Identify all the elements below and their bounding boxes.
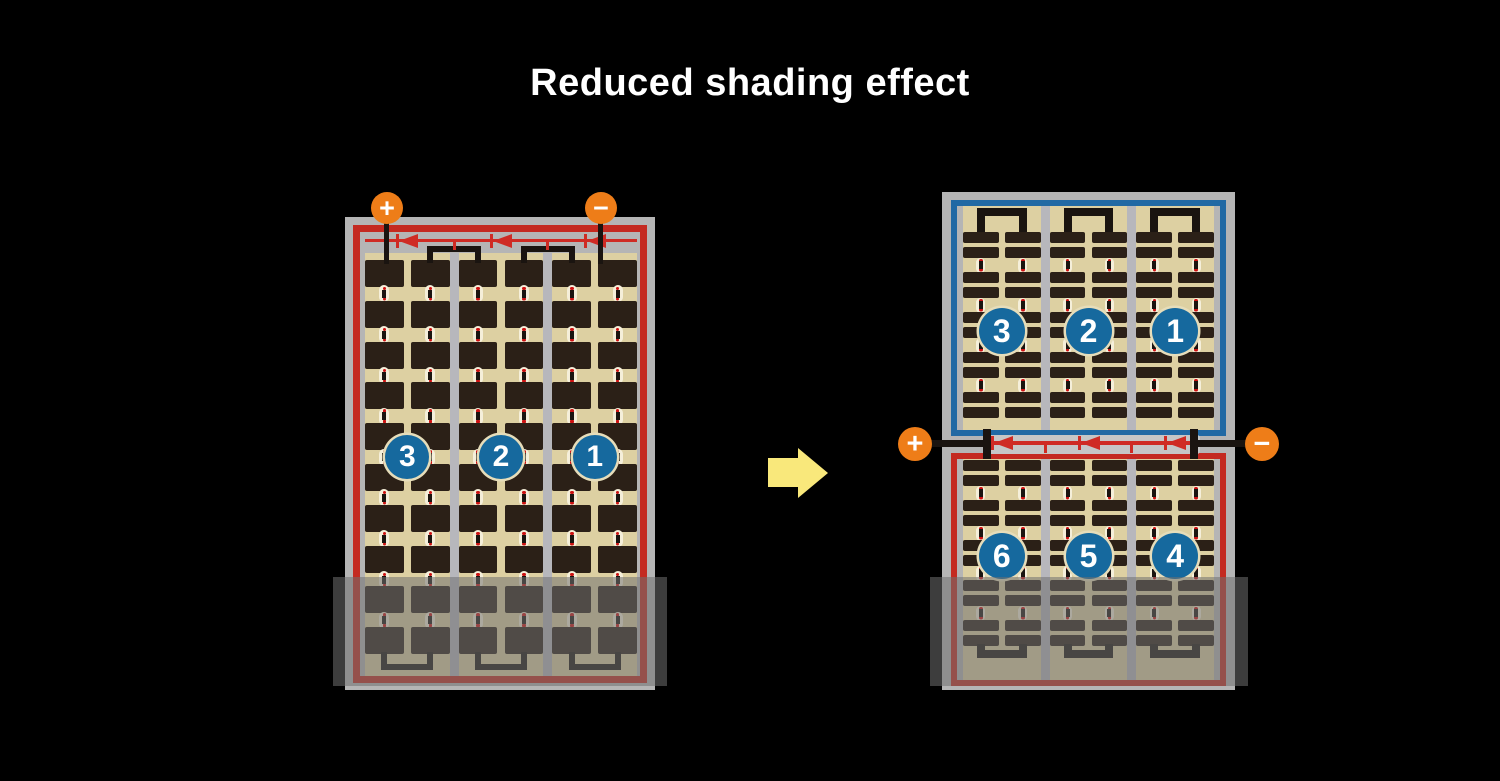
minus-icon: − (1254, 430, 1271, 459)
cell-connector (1018, 378, 1027, 393)
cell-connector (1192, 486, 1201, 501)
cell-connector (1018, 526, 1027, 541)
solar-cell (1136, 500, 1172, 511)
solar-cell (1092, 232, 1128, 243)
solar-cell (1178, 352, 1214, 363)
solar-cell (505, 546, 544, 573)
bypass-diode (584, 234, 607, 248)
string-number-badge: 4 (1152, 533, 1198, 579)
diode-tick (453, 241, 456, 250)
cell-connector (976, 526, 985, 541)
solar-cell (505, 301, 544, 328)
cell-connector (613, 326, 623, 343)
solar-cell (1050, 367, 1086, 378)
bypass-diode (1164, 436, 1187, 450)
solar-cell (1005, 460, 1041, 471)
solar-cell (411, 342, 450, 369)
solar-cell (1092, 460, 1128, 471)
cell-connector (976, 486, 985, 501)
cell-connector (613, 530, 623, 547)
solar-cell (1178, 475, 1214, 486)
solar-cell (1136, 475, 1172, 486)
cell-connector (613, 489, 623, 506)
solar-cell (1136, 407, 1172, 418)
solar-cell (1005, 475, 1041, 486)
solar-cell (411, 260, 450, 287)
cell-connector (379, 489, 389, 506)
solar-cell (459, 342, 498, 369)
bypass-diode (396, 234, 419, 248)
solar-cell (1136, 392, 1172, 403)
solar-cell (963, 515, 999, 526)
solar-cell (1178, 232, 1214, 243)
column-divider (1041, 206, 1050, 430)
cell-connector (425, 530, 435, 547)
solar-cell (1136, 352, 1172, 363)
solar-cell (963, 475, 999, 486)
bus-bar (1192, 208, 1200, 234)
solar-cell (1178, 407, 1214, 418)
solar-cell (1005, 367, 1041, 378)
cell-connector (379, 285, 389, 302)
minus-icon: − (593, 195, 609, 222)
solar-cell (552, 546, 591, 573)
solar-cell (1005, 352, 1041, 363)
solar-cell (1005, 392, 1041, 403)
cell-connector (976, 258, 985, 273)
cell-connector (1063, 486, 1072, 501)
solar-cell (963, 352, 999, 363)
bus-bar (475, 246, 481, 263)
solar-cell (963, 287, 999, 298)
solar-cell (1050, 272, 1086, 283)
bus-bar (1064, 208, 1072, 234)
solar-cell (411, 546, 450, 573)
solar-cell (1092, 272, 1128, 283)
cell-connector (976, 298, 985, 313)
solar-cell (598, 260, 637, 287)
bus-bar (569, 246, 575, 263)
right-module-shading-overlay (930, 577, 1248, 686)
solar-cell (552, 260, 591, 287)
cell-connector (519, 326, 529, 343)
solar-cell (1092, 515, 1128, 526)
solar-cell (411, 505, 450, 532)
bypass-diode (991, 436, 1014, 450)
cell-connector (379, 530, 389, 547)
bypass-diode (1078, 436, 1101, 450)
solar-cell (459, 546, 498, 573)
solar-cell (1050, 407, 1086, 418)
solar-cell (411, 382, 450, 409)
right-positive-terminal: + (898, 427, 932, 461)
cell-connector (1105, 258, 1114, 273)
solar-cell (459, 505, 498, 532)
solar-cell (1092, 475, 1128, 486)
solar-cell (1178, 392, 1214, 403)
solar-cell (505, 505, 544, 532)
solar-cell (1050, 392, 1086, 403)
string-number-badge: 2 (1066, 308, 1112, 354)
solar-cell (365, 301, 404, 328)
solar-cell (1005, 272, 1041, 283)
cell-connector (1150, 486, 1159, 501)
cell-connector (1192, 378, 1201, 393)
cell-connector (379, 326, 389, 343)
cell-connector (1150, 298, 1159, 313)
negative-lead-wire (1198, 440, 1246, 447)
cell-connector (1063, 258, 1072, 273)
solar-cell (1005, 247, 1041, 258)
diode-tick (546, 241, 549, 250)
negative-stem-wire (598, 222, 603, 264)
cell-connector (519, 285, 529, 302)
solar-cell (1136, 515, 1172, 526)
solar-cell (1178, 500, 1214, 511)
string-number-badge: 5 (1066, 533, 1112, 579)
left-positive-terminal: + (371, 192, 403, 224)
solar-cell (1050, 515, 1086, 526)
cell-connector (425, 489, 435, 506)
solar-cell (1050, 247, 1086, 258)
bus-bar (1150, 208, 1158, 234)
cell-connector (1105, 486, 1114, 501)
string-number-badge: 3 (385, 435, 429, 479)
solar-cell (598, 546, 637, 573)
junction-post-right (1190, 429, 1198, 459)
cell-connector (1105, 298, 1114, 313)
solar-cell (1136, 460, 1172, 471)
solar-cell (365, 505, 404, 532)
left-module-shading-overlay (333, 577, 667, 686)
cell-connector (1063, 298, 1072, 313)
solar-cell (1136, 272, 1172, 283)
solar-cell (1050, 460, 1086, 471)
solar-cell (1005, 287, 1041, 298)
solar-cell (1005, 500, 1041, 511)
solar-cell (963, 407, 999, 418)
diagram-canvas: Reduced shading effect 321321654 + − + − (0, 0, 1500, 781)
solar-cell (1092, 287, 1128, 298)
cell-connector (1150, 258, 1159, 273)
solar-cell (552, 301, 591, 328)
solar-cell (963, 272, 999, 283)
solar-cell (1178, 272, 1214, 283)
solar-cell (1092, 352, 1128, 363)
cell-connector (1105, 378, 1114, 393)
bus-bar (427, 246, 433, 263)
cell-connector (519, 489, 529, 506)
solar-cell (1005, 407, 1041, 418)
cell-connector (1150, 526, 1159, 541)
solar-cell (1136, 247, 1172, 258)
cell-connector (1192, 258, 1201, 273)
cell-connector (473, 489, 483, 506)
solar-cell (598, 301, 637, 328)
cell-connector (1105, 526, 1114, 541)
cell-connector (567, 285, 577, 302)
solar-cell (1050, 287, 1086, 298)
solar-cell (1050, 500, 1086, 511)
bus-bar (1105, 208, 1113, 234)
cell-connector (473, 530, 483, 547)
bus-bar (521, 246, 527, 263)
solar-cell (1005, 232, 1041, 243)
cell-connector (1063, 378, 1072, 393)
plus-icon: + (907, 430, 924, 459)
transition-arrow-head (798, 448, 828, 498)
solar-cell (963, 392, 999, 403)
solar-cell (459, 382, 498, 409)
solar-cell (1178, 287, 1214, 298)
diode-tick (1130, 444, 1133, 453)
solar-cell (1092, 407, 1128, 418)
solar-cell (963, 500, 999, 511)
solar-cell (1178, 515, 1214, 526)
left-negative-terminal: − (585, 192, 617, 224)
solar-cell (1092, 392, 1128, 403)
solar-cell (598, 382, 637, 409)
bus-bar (977, 208, 985, 234)
string-number-badge: 1 (573, 435, 617, 479)
solar-cell (1136, 367, 1172, 378)
string-number-badge: 1 (1152, 308, 1198, 354)
solar-cell (1178, 247, 1214, 258)
solar-cell (1050, 475, 1086, 486)
cell-connector (1018, 258, 1027, 273)
solar-cell (365, 342, 404, 369)
cell-connector (519, 530, 529, 547)
page-title: Reduced shading effect (0, 62, 1500, 105)
solar-cell (1178, 460, 1214, 471)
solar-cell (505, 382, 544, 409)
solar-cell (459, 260, 498, 287)
solar-cell (1092, 247, 1128, 258)
solar-cell (505, 260, 544, 287)
solar-cell (963, 460, 999, 471)
cell-connector (425, 326, 435, 343)
solar-cell (963, 367, 999, 378)
cell-connector (1063, 526, 1072, 541)
solar-cell (365, 382, 404, 409)
cell-connector (1150, 378, 1159, 393)
cell-connector (473, 326, 483, 343)
solar-cell (598, 342, 637, 369)
cell-connector (567, 530, 577, 547)
solar-cell (1092, 500, 1128, 511)
plus-icon: + (379, 195, 395, 222)
cell-connector (1018, 298, 1027, 313)
solar-cell (1136, 232, 1172, 243)
cell-connector (567, 326, 577, 343)
cell-connector (1192, 298, 1201, 313)
cell-connector (976, 378, 985, 393)
solar-cell (552, 505, 591, 532)
solar-cell (365, 260, 404, 287)
cell-connector (1018, 486, 1027, 501)
solar-cell (411, 301, 450, 328)
right-negative-terminal: − (1245, 427, 1279, 461)
transition-arrow (768, 458, 798, 487)
positive-lead-wire (930, 440, 984, 447)
string-number-badge: 6 (979, 533, 1025, 579)
solar-cell (505, 342, 544, 369)
solar-cell (1050, 352, 1086, 363)
solar-cell (1092, 367, 1128, 378)
bus-bar (1019, 208, 1027, 234)
cell-connector (473, 285, 483, 302)
cell-connector (567, 489, 577, 506)
cell-connector (613, 285, 623, 302)
string-number-badge: 3 (979, 308, 1025, 354)
solar-cell (1005, 515, 1041, 526)
bypass-diode (490, 234, 513, 248)
solar-cell (365, 546, 404, 573)
solar-cell (963, 247, 999, 258)
cell-connector (425, 285, 435, 302)
diode-tick (1044, 444, 1047, 453)
column-divider (1127, 206, 1136, 430)
solar-cell (963, 232, 999, 243)
junction-post-left (983, 429, 991, 459)
cell-connector (1192, 526, 1201, 541)
solar-cell (1050, 232, 1086, 243)
positive-stem-wire (384, 222, 389, 264)
solar-cell (552, 342, 591, 369)
solar-cell (1178, 367, 1214, 378)
solar-cell (552, 382, 591, 409)
solar-cell (1136, 287, 1172, 298)
solar-cell (459, 301, 498, 328)
string-number-badge: 2 (479, 435, 523, 479)
solar-cell (598, 505, 637, 532)
